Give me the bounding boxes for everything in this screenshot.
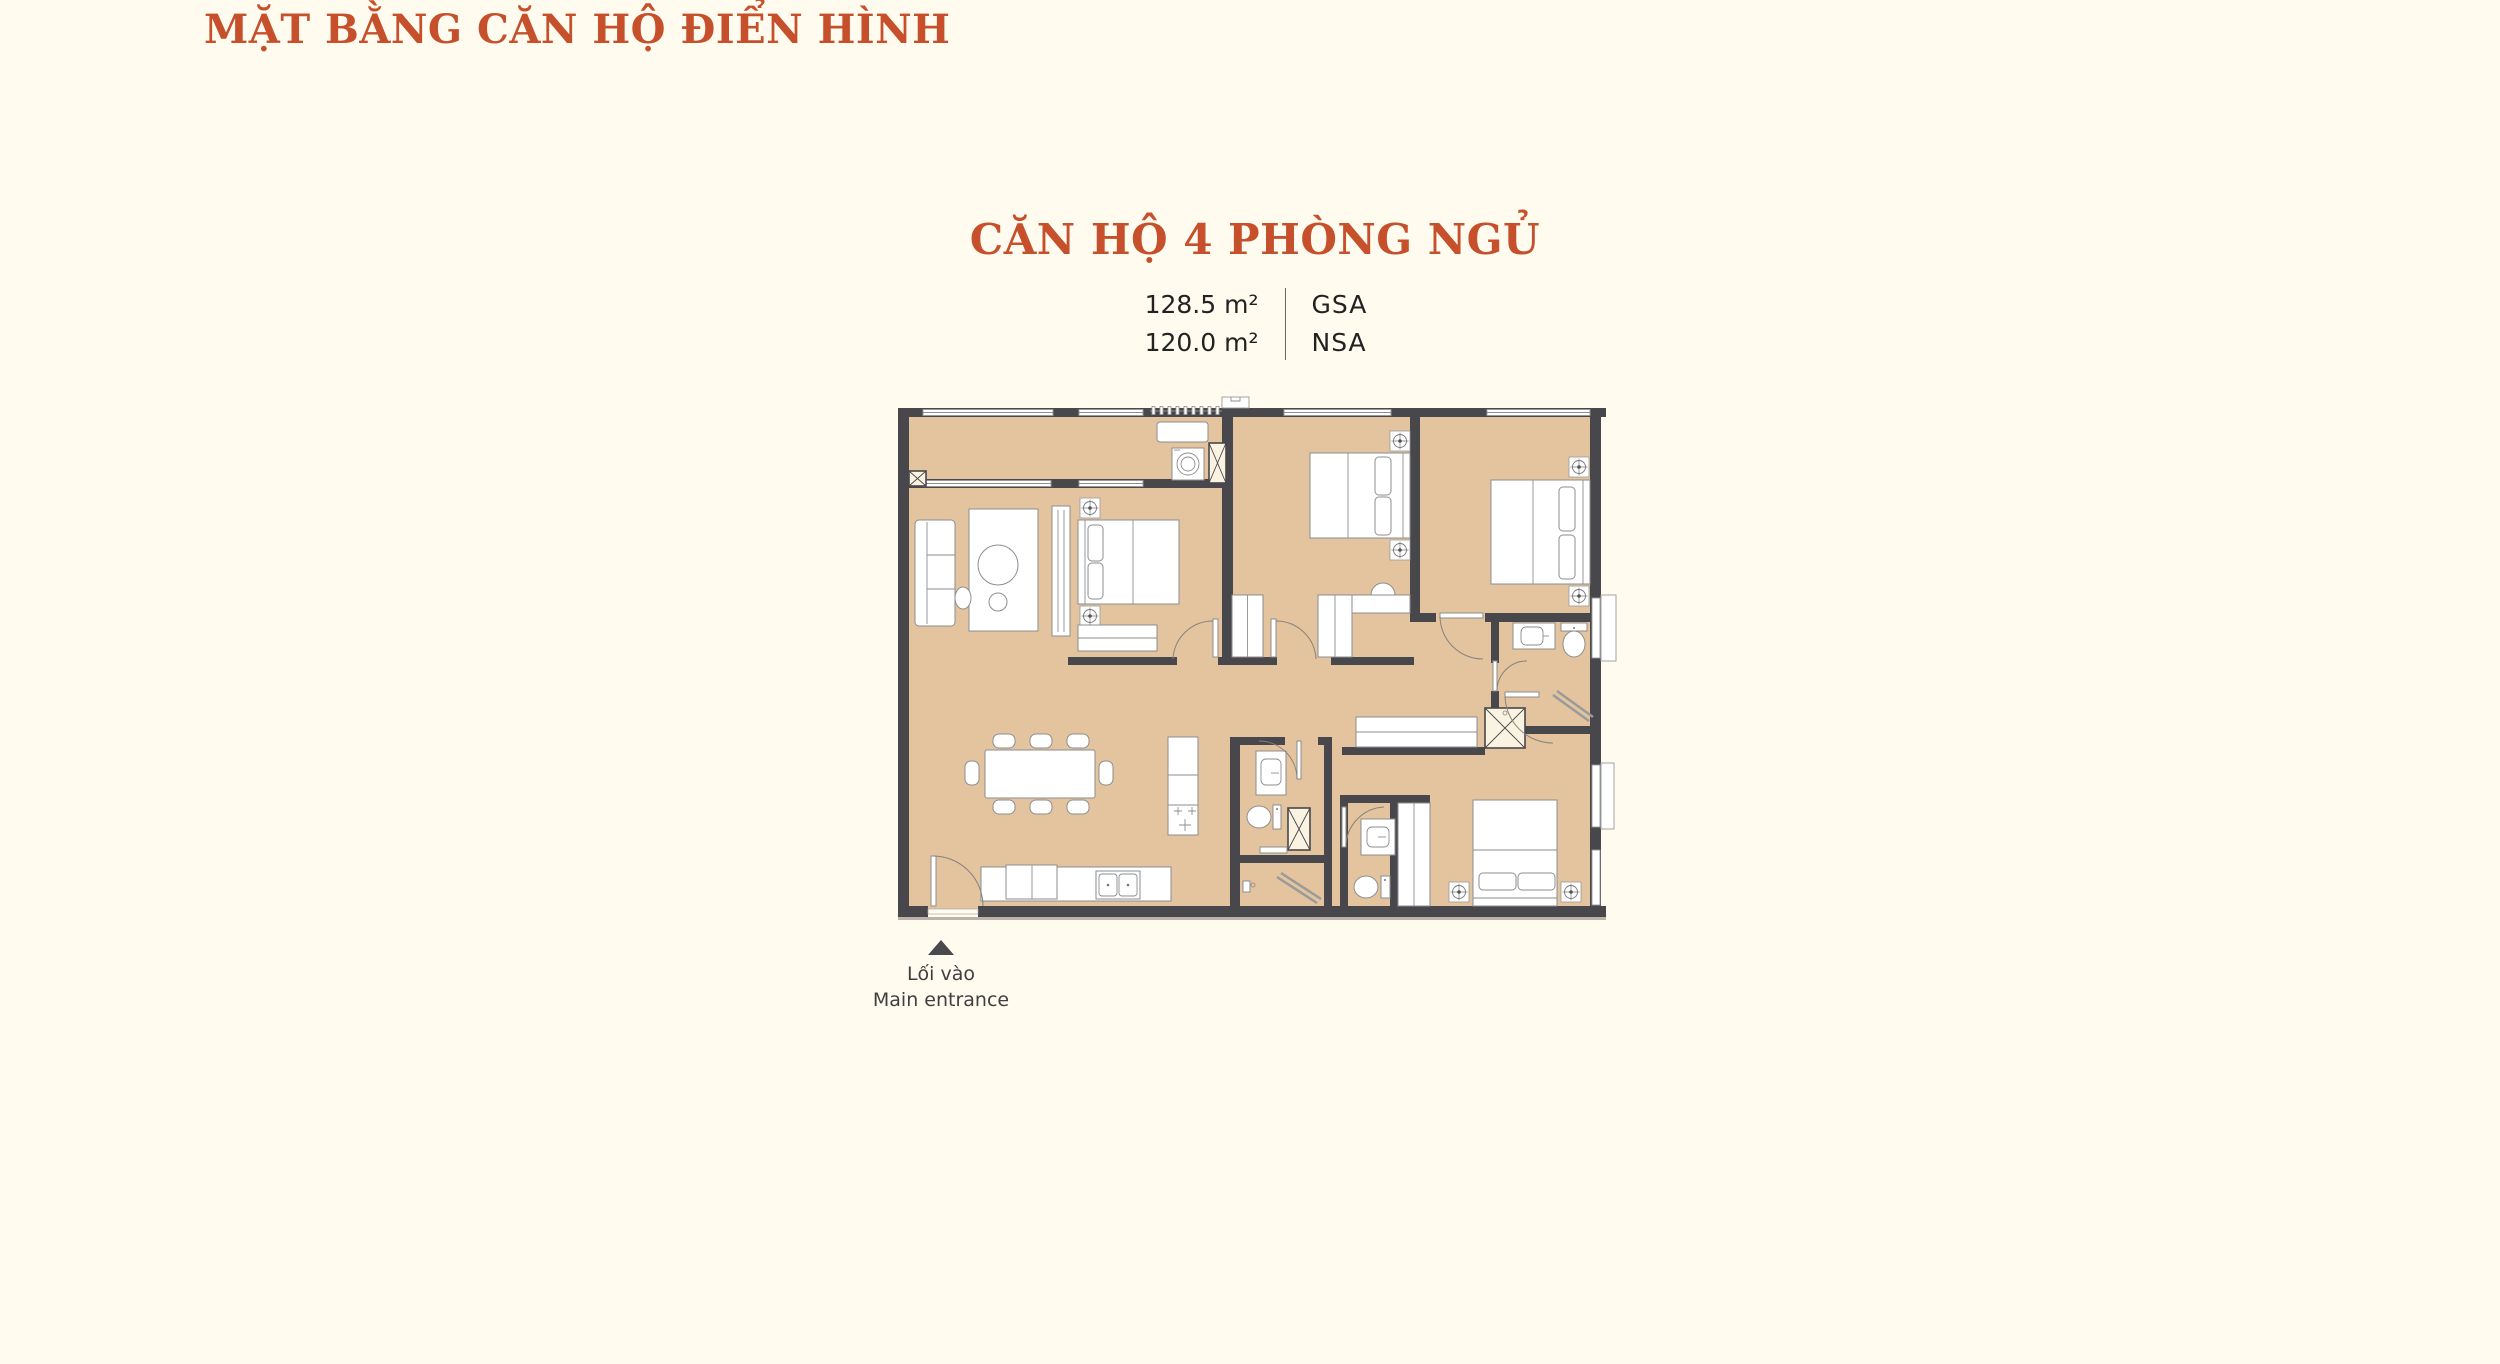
entrance-label-en: Main entrance — [841, 987, 1041, 1013]
door-leaf-right-wing — [1505, 692, 1539, 697]
plan-shadow — [898, 917, 1606, 920]
door-leaf-bathroom-master — [1493, 661, 1497, 691]
ceiling-fan-icon — [1390, 540, 1410, 560]
window-living-sill — [923, 481, 1143, 487]
ceiling-fan-icon — [1569, 457, 1589, 477]
ceiling-fan-icon — [1561, 882, 1581, 902]
area-divider — [1285, 288, 1286, 360]
lounge-chair — [989, 593, 1007, 611]
shaft-left-icon — [909, 471, 926, 486]
bath-shelf — [1260, 847, 1287, 853]
area-values: 128.5 m² 120.0 m² — [1079, 286, 1259, 362]
area-table: 128.5 m² 120.0 m² GSA NSA — [893, 286, 1617, 362]
coffee-table — [978, 545, 1018, 585]
door-leaf-bathroom-4 — [1342, 807, 1346, 847]
ceiling-fan-icon — [1569, 586, 1589, 606]
unit-title: CĂN HỘ 4 PHÒNG NGỦ — [893, 215, 1617, 264]
wardrobe-bedroom-4 — [1398, 803, 1430, 906]
sink-icon — [1361, 819, 1395, 855]
tv-panel — [1052, 506, 1070, 636]
door-leaf-bedroom-3 — [1440, 613, 1483, 618]
window-right-middle — [1592, 763, 1614, 829]
washing-machine-icon — [1172, 448, 1204, 480]
toilet-icon — [1354, 876, 1390, 898]
nsa-value: 120.0 m² — [1079, 324, 1259, 362]
door-leaf-bathroom-hall — [1297, 741, 1301, 779]
bed-3 — [1491, 480, 1590, 584]
window-right-bedroom-4 — [1592, 850, 1600, 905]
window-top-bedroom-2 — [1284, 410, 1391, 416]
unit-info: CĂN HỘ 4 PHÒNG NGỦ 128.5 m² 120.0 m² GSA… — [893, 215, 1617, 362]
floor-plan — [893, 395, 1617, 925]
stove-icon — [1168, 805, 1198, 835]
ceiling-fan-icon — [1080, 498, 1100, 518]
kitchen-sink-icon — [1096, 871, 1140, 899]
wardrobe-corridor — [1356, 717, 1477, 747]
sink-icon — [1513, 623, 1555, 649]
gsa-label: GSA — [1312, 286, 1432, 324]
balcony-railing — [1150, 407, 1222, 415]
window-top-loggia — [923, 410, 1143, 416]
ac-unit-icon — [1222, 397, 1249, 408]
side-table — [955, 587, 971, 609]
bed-1 — [1078, 520, 1179, 604]
ceiling-fan-icon — [1390, 431, 1410, 451]
shaft-bathroom-icon — [1288, 808, 1310, 850]
ceiling-fan-icon — [1080, 606, 1100, 626]
toilet-icon — [1247, 805, 1281, 829]
fridge-icon — [1006, 865, 1057, 899]
gsa-value: 128.5 m² — [1079, 286, 1259, 324]
bed-4 — [1473, 800, 1557, 906]
entrance-label: Lối vào Main entrance — [841, 940, 1041, 1013]
shaft-loggia-icon — [1209, 443, 1226, 483]
wardrobe-bedroom-2-left — [1232, 595, 1263, 657]
bed-2 — [1310, 453, 1410, 538]
area-labels: GSA NSA — [1312, 286, 1432, 362]
entrance-label-vi: Lối vào — [841, 961, 1041, 987]
door-leaf-bedroom-2 — [1271, 619, 1276, 657]
door-leaf-entrance — [931, 856, 936, 906]
bedroom-4 — [1398, 800, 1581, 906]
nsa-label: NSA — [1312, 324, 1432, 362]
entrance-arrow-icon — [928, 940, 954, 955]
shaft-corridor-icon — [1485, 708, 1525, 748]
door-leaf-bedroom-1 — [1213, 619, 1218, 657]
ceiling-fan-icon — [1449, 882, 1469, 902]
sink-icon — [1256, 751, 1286, 795]
loggia-cabinet — [1157, 422, 1208, 442]
window-right-bathroom — [1592, 595, 1616, 661]
wardrobe-bedroom-2-right — [1318, 595, 1352, 657]
window-top-bedroom-3 — [1487, 410, 1590, 416]
page-title: MẶT BẰNG CĂN HỘ ĐIỂN HÌNH — [204, 6, 950, 53]
wardrobe-bedroom-1 — [1078, 625, 1157, 651]
toilet-icon — [1561, 623, 1587, 657]
